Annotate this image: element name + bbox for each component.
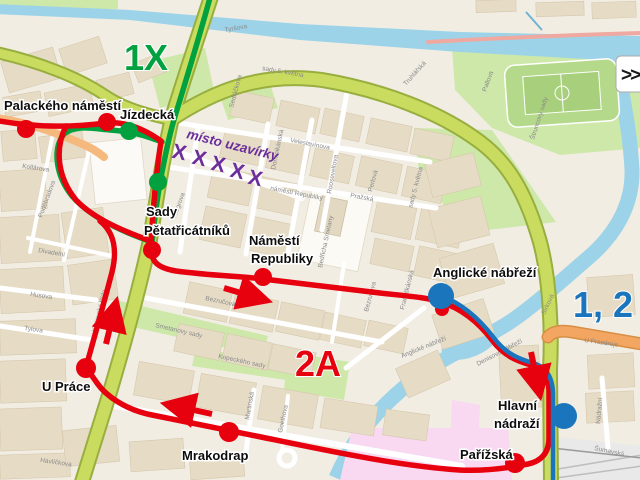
pan-next-control[interactable]: >>	[616, 56, 640, 92]
building-block	[476, 0, 516, 13]
stop-name-label: Palackého náměstí	[4, 98, 121, 113]
interchange-stop-blue	[428, 283, 454, 309]
stop-name-label: U Práce	[42, 379, 90, 394]
stop-name-label: Republiky	[251, 251, 314, 266]
tram-stop-red	[254, 268, 272, 286]
building-block	[587, 353, 635, 389]
interchange-stop-blue	[551, 403, 577, 429]
tram-stop-red	[76, 358, 96, 378]
stop-name-label: Anglické nábřeží	[433, 265, 537, 280]
tram-stop-red	[219, 422, 239, 442]
map-canvas: Tyršovasady 5. květnasady 5. květnaVeles…	[0, 0, 640, 480]
tram-stop-green	[120, 122, 138, 140]
stadium	[504, 58, 620, 128]
stop-name-label: Hlavní	[498, 398, 537, 413]
line-number-label: 1X	[124, 37, 168, 78]
building-block	[536, 1, 584, 17]
tram-stop-red	[17, 120, 35, 138]
stop-name-label: Mrakodrap	[182, 448, 249, 463]
line-number-label: 2A	[295, 343, 341, 384]
stop-name-label: Pětatřicátníků	[144, 223, 230, 238]
tram-stop-red	[98, 113, 116, 131]
roundabout	[279, 450, 295, 466]
line-number-label: 1, 2	[573, 284, 633, 325]
building-block	[129, 438, 185, 472]
stop-name-label: nádraží	[494, 416, 540, 431]
building-block	[585, 391, 635, 423]
stop-name-label: Pařížská	[460, 447, 514, 462]
stop-name-label: Náměstí	[249, 233, 300, 248]
city-map: Tyršovasady 5. květnasady 5. květnaVeles…	[0, 0, 640, 480]
stop-name-label: Jízdecká	[120, 107, 175, 122]
tram-stop-green	[149, 173, 167, 191]
pan-next-icon: >>	[621, 65, 640, 86]
tram-stop-red	[143, 241, 161, 259]
building-block	[592, 1, 637, 19]
stop-name-label: Sady	[146, 204, 178, 219]
building-block	[0, 407, 63, 451]
